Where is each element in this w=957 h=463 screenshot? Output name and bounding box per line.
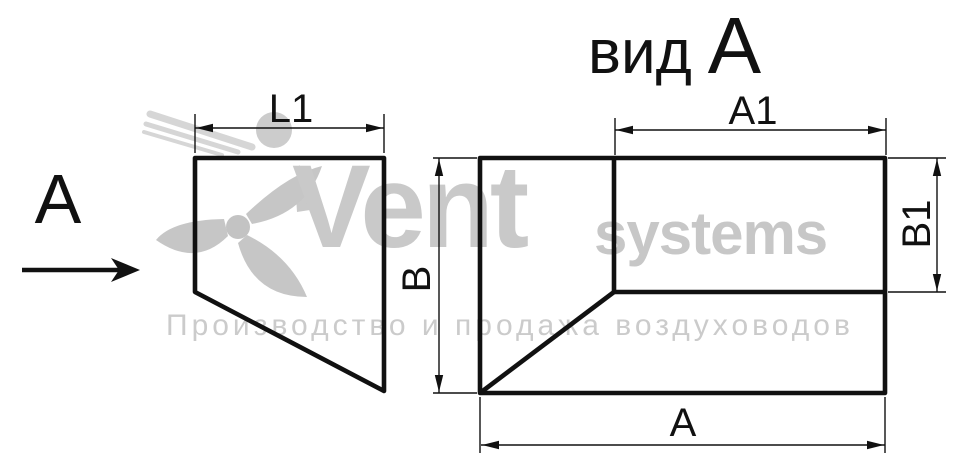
labels-layer: вид А A L1 A1 B B1 A bbox=[0, 0, 957, 463]
view-a-title: вид А bbox=[588, 6, 761, 86]
view-a-title-word: вид bbox=[588, 22, 692, 84]
dim-label-b: B bbox=[397, 239, 437, 319]
side-view-label: A bbox=[28, 164, 88, 234]
view-a-title-letter: А bbox=[708, 6, 761, 86]
dim-label-a: A bbox=[643, 403, 723, 443]
technical-drawing-canvas: Vent systems Производство и продажа возд… bbox=[0, 0, 957, 463]
dim-label-b1: B1 bbox=[897, 184, 937, 264]
dim-label-l1: L1 bbox=[251, 89, 331, 129]
dim-label-a1: A1 bbox=[713, 91, 793, 131]
